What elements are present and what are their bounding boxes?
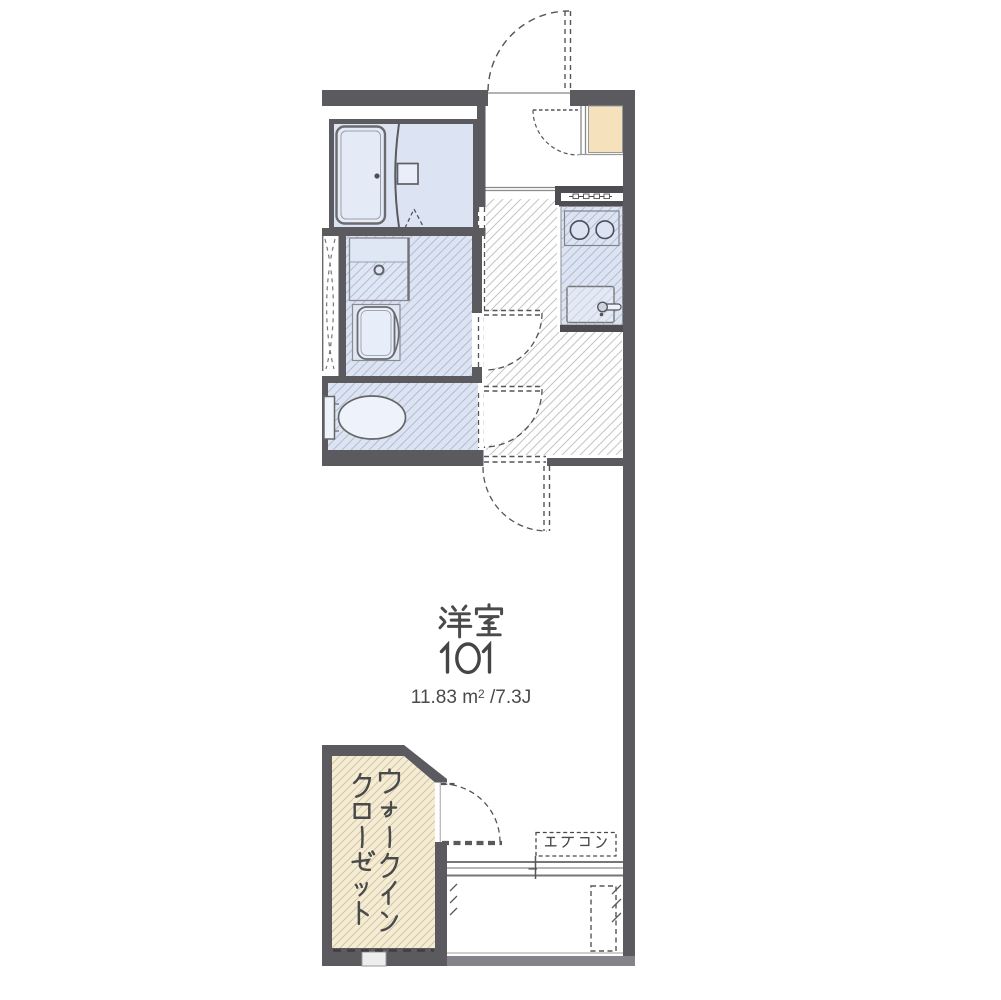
svg-text:11.83 m2 /7.3J: 11.83 m2 /7.3J [411,687,531,708]
